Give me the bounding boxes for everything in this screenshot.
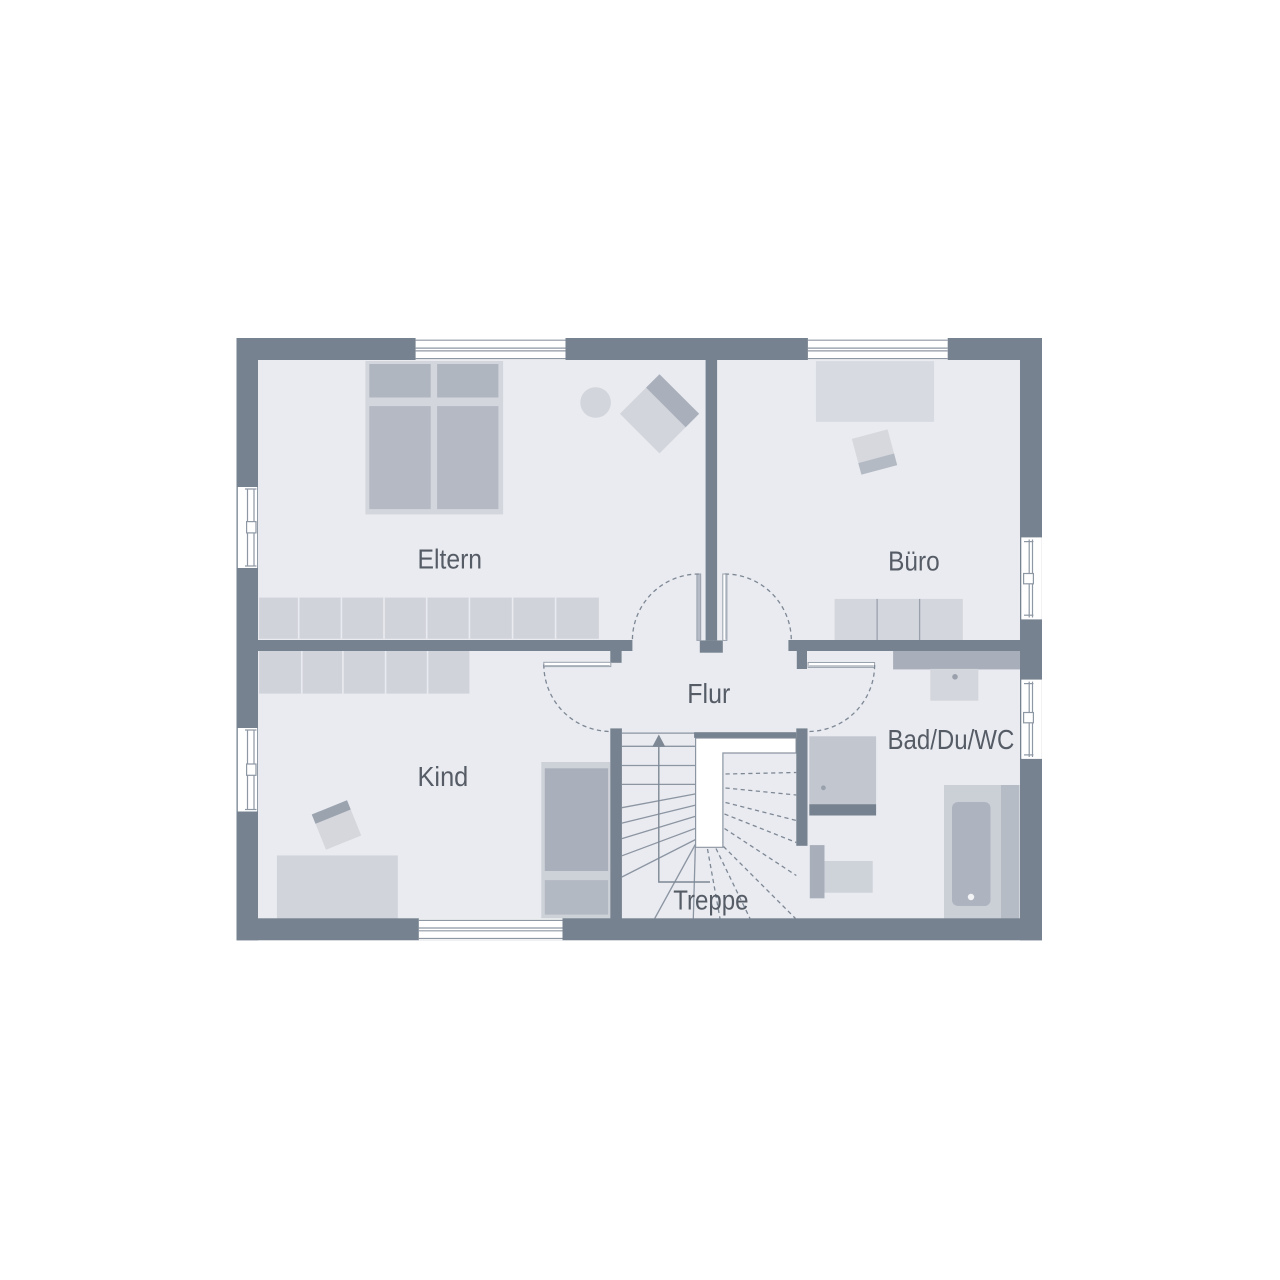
svg-text:Kind: Kind [418,761,469,792]
svg-text:Büro: Büro [888,546,940,577]
svg-text:Eltern: Eltern [418,543,483,574]
svg-text:Bad/Du/WC: Bad/Du/WC [887,724,1014,755]
svg-text:Flur: Flur [687,678,730,709]
svg-text:Treppe: Treppe [673,885,748,916]
